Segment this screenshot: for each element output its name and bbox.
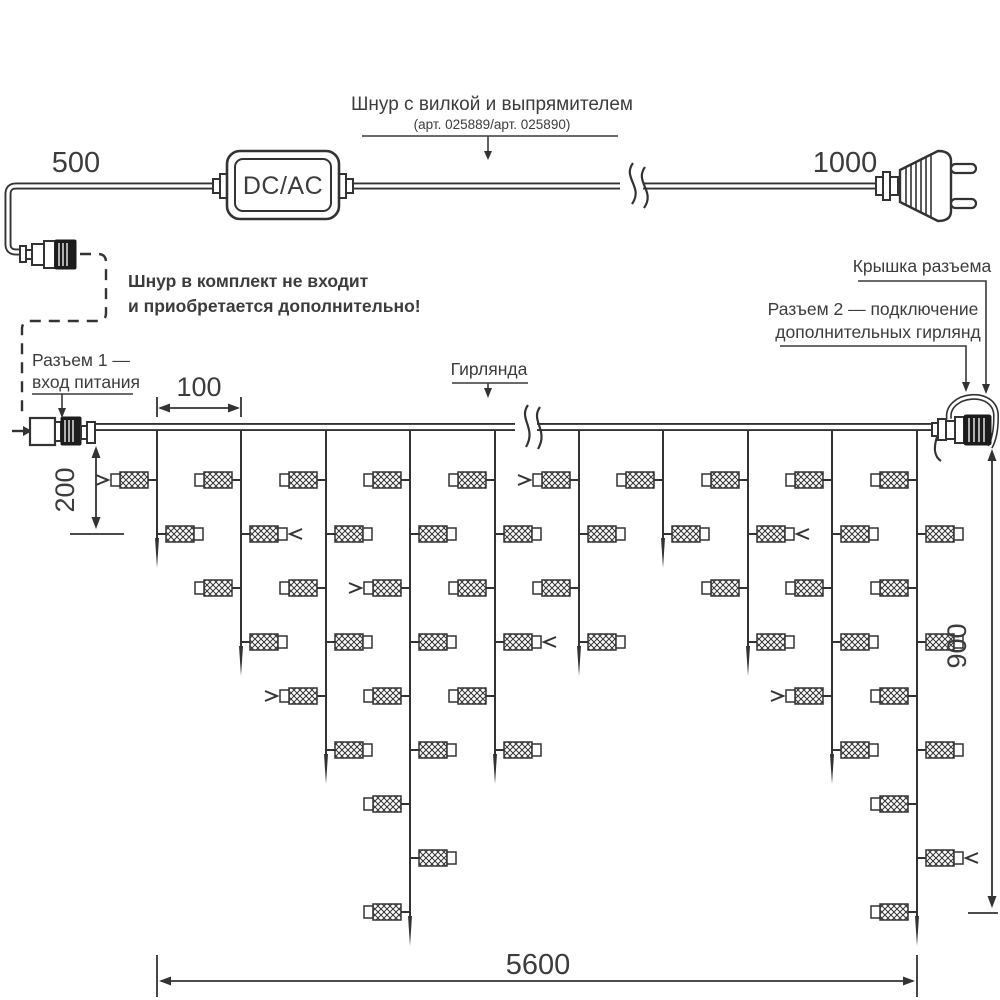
led-cap [533,474,542,486]
dimension-5600-group: 5600 [157,949,917,997]
led-cap [871,474,880,486]
led-cap [869,528,878,540]
led-body [711,580,739,596]
plug-prong-top [951,164,976,173]
led-cap [786,582,795,594]
garland-callout: Гирлянда [451,359,528,398]
note-line2: и приобретается дополнительно! [128,296,421,316]
led-cap [954,528,963,540]
led-cap [954,744,963,756]
connector2-label-line2: дополнительных гирлянд [775,322,980,342]
led-cap [278,636,287,648]
led-direction-arrow [349,583,361,593]
led-cap [449,690,458,702]
garland-end-connector [932,397,996,461]
led-body [250,526,278,542]
led-cap [702,474,711,486]
led-cap [954,852,963,864]
garland-wiring-diagram: DC/AC Шнур с вилкой и выпрямителем (арт.… [0,0,1000,1000]
led-body [289,580,317,596]
led-cap [532,528,541,540]
strand-tip [830,754,834,784]
led-direction-arrow [771,691,783,701]
led-cap [280,474,289,486]
led-cap [616,528,625,540]
led-body [166,526,194,542]
dimension-5600: 5600 [506,949,571,981]
led-body [588,634,616,650]
led-cap [364,582,373,594]
led-cap [280,582,289,594]
led-body [504,526,532,542]
cord-callout-arrowhead [484,151,492,160]
led-cap [532,744,541,756]
led-cap [786,474,795,486]
connector1-label-line2: вход питания [32,372,140,392]
led-body [542,580,570,596]
garland-label: Гирлянда [451,359,528,379]
connector2-arrowhead [962,382,970,392]
led-direction-arrow [544,637,556,647]
led-body [458,472,486,488]
led-body [335,526,363,542]
led-body [880,580,908,596]
cord-break-symbol [620,163,648,209]
led-body [880,904,908,920]
led-direction-arrow [96,475,108,485]
led-body [289,688,317,704]
cord-label: Шнур с вилкой и выпрямителем [351,94,633,115]
led-cap [869,744,878,756]
led-cap [871,582,880,594]
led-cap [786,690,795,702]
garland-input-connector [30,417,95,445]
led-cap [447,528,456,540]
led-cap [869,636,878,648]
led-cap [111,474,120,486]
connector2-callout: Разъем 2 — подключение дополнительных ги… [768,299,981,392]
cord-callout: Шнур с вилкой и выпрямителем (арт. 02588… [351,94,633,160]
led-cap [449,582,458,594]
dcac-converter-box: DC/AC [213,151,353,219]
led-cap [195,474,204,486]
led-body [672,526,700,542]
led-cap [616,636,625,648]
strand-tip [493,754,497,784]
strand-tip [324,754,328,784]
led-body [419,850,447,866]
led-cap [871,798,880,810]
led-body [419,526,447,542]
dimension-100: 100 [176,372,221,402]
led-body [373,904,401,920]
led-body [250,634,278,650]
dimension-100-group: 100 [157,372,241,417]
led-body [458,580,486,596]
dimension-900: 900 [942,623,972,668]
dimension-900-group: 900 [942,449,998,913]
led-body [373,796,401,812]
led-body [542,472,570,488]
led-body [926,742,954,758]
led-body [795,580,823,596]
led-cap [871,690,880,702]
strand-tip [915,916,919,946]
dimension-200-group: 200 [50,446,124,534]
connector1-callout: Разъем 1 — вход питания [32,350,140,418]
led-body [373,580,401,596]
led-cap [533,582,542,594]
note-callout: Шнур в комплект не входит и приобретаетс… [128,271,421,316]
led-direction-arrow [966,853,978,863]
cord-end-connector [20,240,76,269]
led-body [841,526,869,542]
connector1-label-line1: Разъем 1 — [32,350,130,370]
led-body [926,850,954,866]
led-direction-arrow [518,475,530,485]
dimension-500: 500 [52,147,100,179]
led-cap [363,636,372,648]
note-line1: Шнур в комплект не входит [128,271,369,291]
led-body [588,526,616,542]
led-body [458,688,486,704]
led-body [504,634,532,650]
led-cap [194,528,203,540]
dimension-200: 200 [50,467,80,512]
led-cap [280,690,289,702]
led-body [757,526,785,542]
led-body [289,472,317,488]
led-body [880,688,908,704]
power-plug [876,151,976,221]
led-cap [871,906,880,918]
led-body [204,580,232,596]
led-body [880,796,908,812]
led-cap [364,474,373,486]
led-cap [447,744,456,756]
led-cap [447,636,456,648]
led-cap [363,744,372,756]
led-cap [702,582,711,594]
led-cap [617,474,626,486]
led-body [711,472,739,488]
led-body [335,742,363,758]
strand-tip [408,916,412,946]
led-body [795,688,823,704]
garland-strands [96,427,978,946]
plug-prong-bottom [951,199,976,208]
garland-main-line [95,405,935,449]
led-direction-arrow [797,529,809,539]
strand-tip [746,646,750,676]
led-body [335,634,363,650]
led-body [841,634,869,650]
led-body [373,688,401,704]
led-body [204,472,232,488]
led-cap [785,528,794,540]
connector2-label-line1: Разъем 2 — подключение [768,299,979,319]
diagram-canvas: DC/AC Шнур с вилкой и выпрямителем (арт.… [0,0,1000,1000]
led-cap [278,528,287,540]
led-cap [364,798,373,810]
led-cap [364,906,373,918]
garland-arrowhead [484,388,492,398]
led-cap [363,528,372,540]
led-cap [700,528,709,540]
led-body [626,472,654,488]
led-body [795,472,823,488]
power-cord [8,163,880,252]
led-direction-arrow [290,529,302,539]
led-body [504,742,532,758]
strand-tip [155,538,159,568]
led-body [841,742,869,758]
led-cap [785,636,794,648]
led-body [373,472,401,488]
led-cap [364,690,373,702]
led-body [419,634,447,650]
led-cap [532,636,541,648]
led-body [757,634,785,650]
strand-tip [661,538,665,568]
dcac-label: DC/AC [243,172,323,200]
led-direction-arrow [265,691,277,701]
cap-label: Крышка разъема [853,256,992,276]
led-body [880,472,908,488]
led-cap [447,852,456,864]
led-cap [195,582,204,594]
led-body [419,742,447,758]
dimension-1000: 1000 [813,147,878,179]
strand-tip [577,646,581,676]
led-cap [449,474,458,486]
strand-tip [239,646,243,676]
led-body [120,472,148,488]
led-body [926,526,954,542]
cord-article-label: (арт. 025889/арт. 025890) [414,117,571,132]
cap-arrowhead [982,384,990,394]
